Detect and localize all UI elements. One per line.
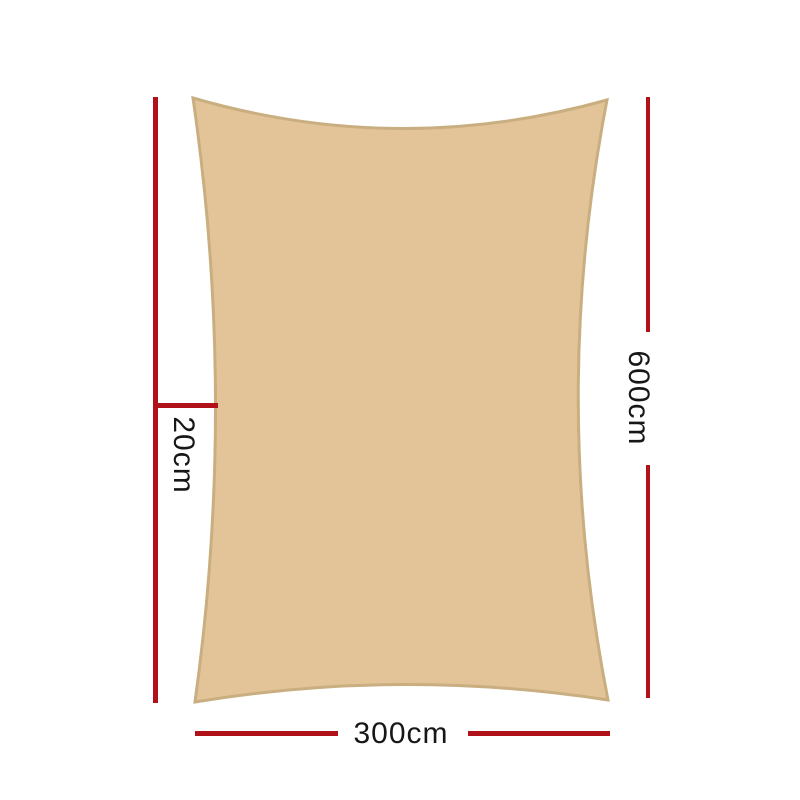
dimension-diagram: 20cm 600cm 300cm (0, 0, 800, 800)
shade-sail-shape (193, 98, 608, 702)
height-dimension-line-upper (646, 97, 650, 332)
width-dimension-line-right (468, 731, 610, 736)
left-tick-label: 20cm (168, 416, 198, 493)
width-dimension-line-left (195, 731, 338, 736)
width-dimension-label: 300cm (353, 719, 448, 749)
shade-sail-image (0, 0, 800, 800)
height-dimension-label: 600cm (623, 350, 653, 445)
left-dimension-tick (153, 403, 218, 408)
left-dimension-line (153, 97, 158, 703)
height-dimension-line-lower (646, 465, 650, 698)
